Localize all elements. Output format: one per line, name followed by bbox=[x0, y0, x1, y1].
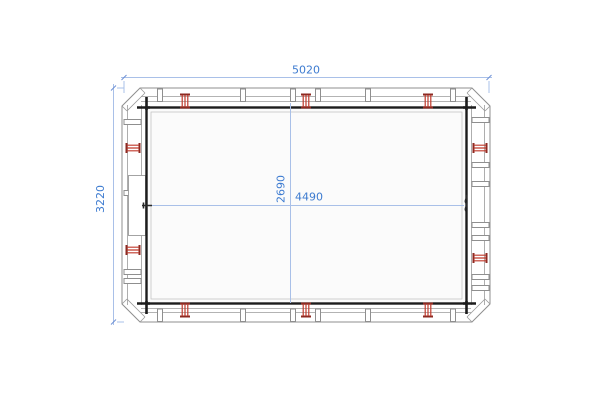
dimension-label-overall-height: 3220 bbox=[94, 185, 107, 213]
cad-drawing-canvas: 5020 3220 2690 4490 bbox=[0, 0, 600, 400]
dimension-label-inner-width: 4490 bbox=[295, 191, 323, 204]
dimension-label-inner-height: 2690 bbox=[275, 175, 288, 203]
dimension-label-overall-width: 5020 bbox=[292, 64, 320, 77]
cad-drawing-viewport: 5020 3220 2690 4490 bbox=[0, 0, 600, 400]
dimension-overall-height: 3220 bbox=[94, 84, 124, 325]
